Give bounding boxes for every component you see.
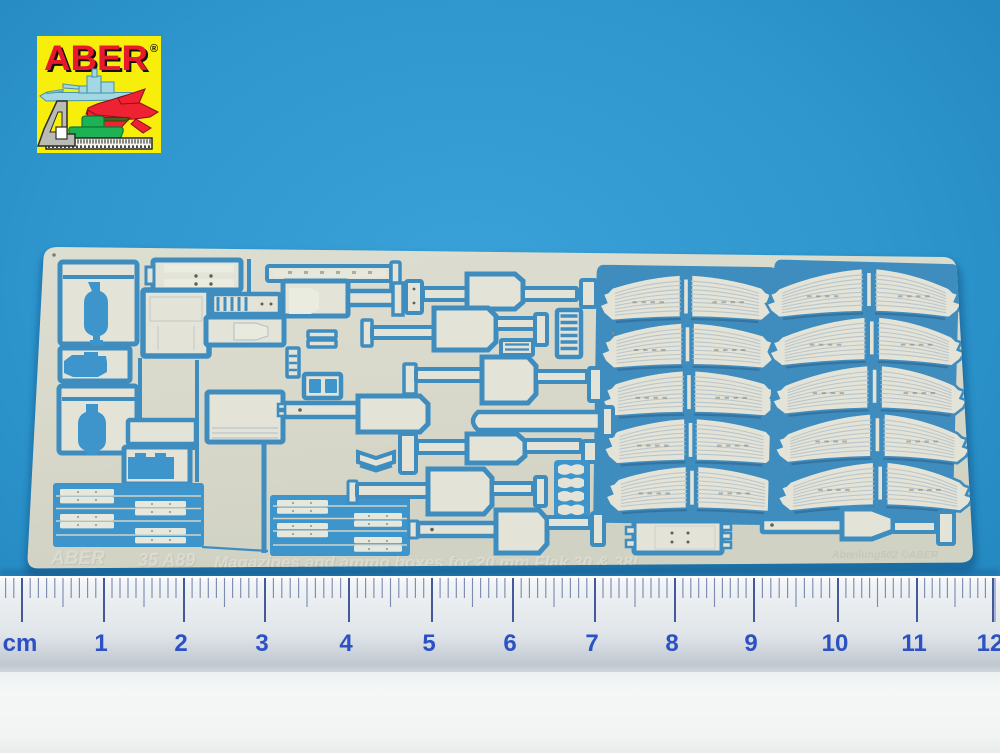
svg-text:2: 2 — [174, 630, 187, 657]
svg-text:Abteilung502 ©ABER: Abteilung502 ©ABER — [831, 549, 939, 561]
svg-text:11: 11 — [901, 630, 926, 657]
svg-text:12: 12 — [977, 630, 1000, 657]
svg-text:4: 4 — [339, 630, 353, 657]
svg-text:10: 10 — [822, 630, 849, 657]
svg-text:35 A89: 35 A89 — [138, 550, 195, 570]
svg-text:®: ® — [150, 43, 158, 55]
svg-text:7: 7 — [585, 630, 598, 657]
svg-text:ABER: ABER — [50, 548, 105, 569]
svg-text:1: 1 — [94, 630, 107, 657]
svg-text:8: 8 — [665, 630, 678, 657]
svg-text:5: 5 — [422, 630, 435, 657]
svg-text:cm: cm — [3, 630, 38, 657]
svg-text:3: 3 — [255, 630, 268, 657]
svg-text:9: 9 — [744, 630, 757, 657]
svg-text:6: 6 — [503, 630, 516, 657]
